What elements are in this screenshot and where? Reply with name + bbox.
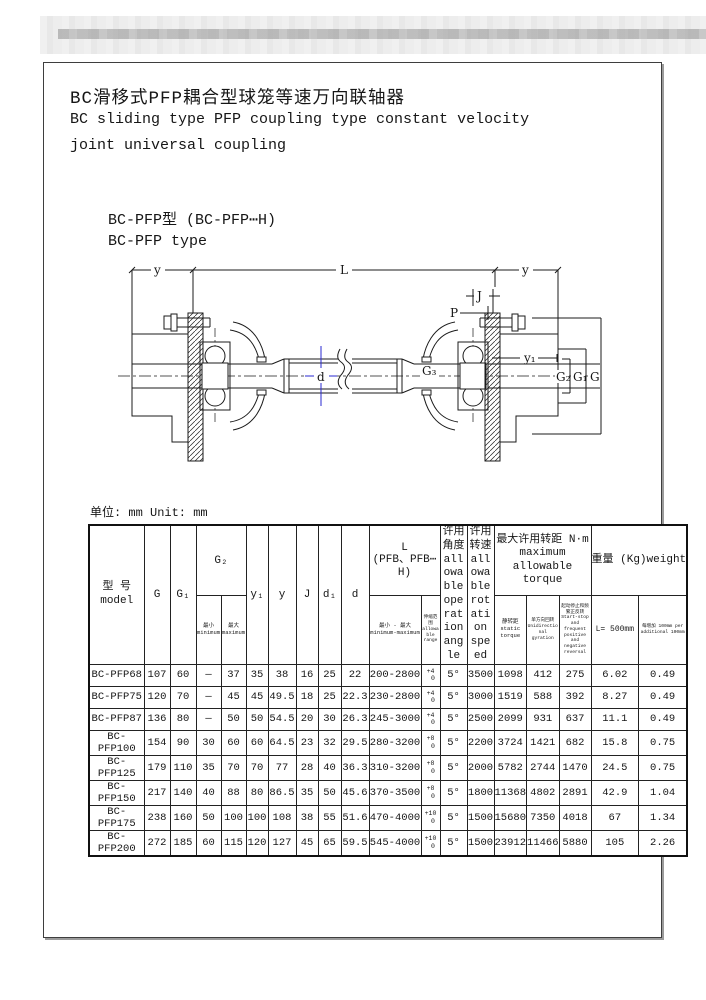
table-cell: 77: [268, 755, 296, 780]
table-cell: 100: [246, 805, 268, 830]
table-cell: 23: [296, 730, 318, 755]
table-cell: 35: [296, 780, 318, 805]
table-cell: 70: [170, 686, 196, 708]
table-cell: 80: [170, 708, 196, 730]
table-row: BC-PFP12517911035707077284036.3310-3200+…: [89, 755, 687, 780]
table-cell: 45: [246, 686, 268, 708]
table-cell: 5°: [440, 686, 467, 708]
header-y1: y₁: [246, 525, 268, 664]
table-cell: 4802: [527, 780, 560, 805]
table-cell: 5°: [440, 805, 467, 830]
table-cell: 105: [591, 830, 639, 856]
table-cell: 5°: [440, 780, 467, 805]
table-cell: 1500: [467, 805, 494, 830]
table-cell: 2200: [467, 730, 494, 755]
table-cell: 238: [144, 805, 170, 830]
table-cell: —: [196, 708, 221, 730]
table-cell: 15.8: [591, 730, 639, 755]
table-cell: 64.5: [268, 730, 296, 755]
table-cell: 637: [559, 708, 591, 730]
table-cell: 1470: [559, 755, 591, 780]
table-cell: 45: [296, 830, 318, 856]
table-cell: 49.5: [268, 686, 296, 708]
table-cell: 2891: [559, 780, 591, 805]
table-cell: 3724: [494, 730, 527, 755]
table-cell: 136: [144, 708, 170, 730]
header-model-en: model: [90, 595, 144, 609]
table-cell: +40: [421, 664, 440, 686]
table-cell: 115: [221, 830, 246, 856]
table-cell: +40: [421, 686, 440, 708]
table-cell: 5°: [440, 664, 467, 686]
model-cell: BC-PFP175: [89, 805, 144, 830]
header-L-line1: L: [370, 542, 440, 555]
table-cell: 1.34: [639, 805, 688, 830]
model-cell: BC-PFP200: [89, 830, 144, 856]
table-cell: 26.3: [341, 708, 369, 730]
header-model-cn: 型 号: [90, 581, 144, 595]
table-cell: 5°: [440, 708, 467, 730]
dim-label-G1: G₁: [573, 370, 587, 384]
table-cell: 35: [246, 664, 268, 686]
table-cell: 4018: [559, 805, 591, 830]
unit-note: 单位: mm Unit: mm: [90, 503, 208, 520]
model-cell: BC-PFP75: [89, 686, 144, 708]
table-cell: 275: [559, 664, 591, 686]
table-cell: 11368: [494, 780, 527, 805]
table-cell: 54.5: [268, 708, 296, 730]
dim-label-y-right: y: [521, 263, 529, 277]
table-cell: 931: [527, 708, 560, 730]
table-cell: 5782: [494, 755, 527, 780]
dim-label-G: G: [590, 370, 600, 384]
table-cell: 22: [341, 664, 369, 686]
table-cell: 67: [591, 805, 639, 830]
model-cell: BC-PFP68: [89, 664, 144, 686]
page-title-en-1: BC sliding type PFP coupling type consta…: [70, 111, 529, 128]
table-cell: 7350: [527, 805, 560, 830]
header-L-minmax: 最小 - 最大 minimum-maximum: [369, 596, 421, 664]
table-cell: 8.27: [591, 686, 639, 708]
table-cell: 50: [246, 708, 268, 730]
dim-label-L: L: [340, 263, 348, 277]
header-weight-group: 重量 (Kg)weight: [591, 525, 687, 596]
table-cell: 160: [170, 805, 196, 830]
table-cell: 80: [246, 780, 268, 805]
table-cell: 140: [170, 780, 196, 805]
table-cell: 0.49: [639, 686, 688, 708]
dim-label-y-left: y: [153, 263, 161, 277]
header-G2-min: 最小 minimum: [196, 596, 221, 664]
table-cell: 70: [221, 755, 246, 780]
table-cell: 30: [196, 730, 221, 755]
table-cell: 2.26: [639, 830, 688, 856]
dim-label-d: d: [317, 370, 325, 384]
table-cell: 55: [318, 805, 341, 830]
header-d: d: [341, 525, 369, 664]
header-G: G: [144, 525, 170, 664]
table-cell: 5°: [440, 755, 467, 780]
table-cell: 18: [296, 686, 318, 708]
table-cell: 86.5: [268, 780, 296, 805]
catalog-page: BC滑移式PFP耦合型球笼等速万向联轴器 BC sliding type PFP…: [0, 0, 706, 1000]
table-cell: 60: [246, 730, 268, 755]
table-row: BC-PFP1001549030606064.5233229.5280-3200…: [89, 730, 687, 755]
table-cell: 65: [318, 830, 341, 856]
table-cell: 154: [144, 730, 170, 755]
model-cell: BC-PFP125: [89, 755, 144, 780]
header-L-range: 伸缩范围 allowable range: [421, 596, 440, 664]
header-allowable-angle: 许用角度 allowable operation angle: [440, 525, 467, 664]
table-cell: 3500: [467, 664, 494, 686]
table-cell: 40: [196, 780, 221, 805]
table-row: BC-PFP17523816050100100108385551.6470-40…: [89, 805, 687, 830]
table-cell: 38: [268, 664, 296, 686]
table-cell: 42.9: [591, 780, 639, 805]
table-cell: 50: [318, 780, 341, 805]
model-cell: BC-PFP87: [89, 708, 144, 730]
header-startstop-torque: 起动停止和频繁正反转 Start-stop and frequent posit…: [559, 596, 591, 664]
table-cell: +100: [421, 805, 440, 830]
model-cell: BC-PFP100: [89, 730, 144, 755]
header-L-line2: (PFB、PFB⋯H): [370, 554, 440, 579]
table-cell: 70: [246, 755, 268, 780]
table-cell: 11466: [527, 830, 560, 856]
table-cell: 90: [170, 730, 196, 755]
table-cell: 272: [144, 830, 170, 856]
table-cell: 45: [221, 686, 246, 708]
table-cell: 185: [170, 830, 196, 856]
type-designation-cn: BC-PFP型 (BC-PFP⋯H): [108, 208, 276, 229]
table-cell: 110: [170, 755, 196, 780]
table-cell: 470-4000: [369, 805, 421, 830]
table-cell: 88: [221, 780, 246, 805]
table-cell: 280-3200: [369, 730, 421, 755]
type-designation-en: BC-PFP type: [108, 233, 207, 250]
table-cell: 22.3: [341, 686, 369, 708]
table-cell: +80: [421, 755, 440, 780]
table-cell: 35: [196, 755, 221, 780]
table-cell: 310-3200: [369, 755, 421, 780]
table-cell: 36.3: [341, 755, 369, 780]
table-cell: 25: [318, 686, 341, 708]
table-cell: 37: [221, 664, 246, 686]
dim-label-y1: y₁: [523, 351, 536, 365]
table-cell: 370-3500: [369, 780, 421, 805]
table-cell: 2744: [527, 755, 560, 780]
header-y: y: [268, 525, 296, 664]
spec-table-body: BC-PFP6810760—373538162522200-2800+405°3…: [89, 664, 687, 856]
table-row: BC-PFP7512070—454549.5182522.3230-2800+4…: [89, 686, 687, 708]
table-cell: 120: [246, 830, 268, 856]
table-cell: 0.49: [639, 708, 688, 730]
table-cell: 32: [318, 730, 341, 755]
table-cell: 1800: [467, 780, 494, 805]
table-cell: 25: [318, 664, 341, 686]
table-cell: +40: [421, 708, 440, 730]
table-cell: 60: [196, 830, 221, 856]
technical-drawing: y L y J P y₁ G₃ d G₂ G₁ G: [100, 256, 605, 481]
table-cell: 45.6: [341, 780, 369, 805]
table-row: BC-PFP20027218560115120127456559.5545-40…: [89, 830, 687, 856]
table-cell: —: [196, 686, 221, 708]
header-static-torque: 静转距 static torque: [494, 596, 527, 664]
table-cell: 5°: [440, 830, 467, 856]
dim-label-P: P: [450, 306, 458, 320]
table-cell: 5880: [559, 830, 591, 856]
table-cell: 20: [296, 708, 318, 730]
table-cell: 1.04: [639, 780, 688, 805]
table-cell: 588: [527, 686, 560, 708]
table-cell: 15680: [494, 805, 527, 830]
table-row: BC-PFP15021714040888086.5355045.6370-350…: [89, 780, 687, 805]
header-G2-max: 最大 maximum: [221, 596, 246, 664]
header-G1: G₁: [170, 525, 196, 664]
table-cell: 23912: [494, 830, 527, 856]
table-cell: 50: [221, 708, 246, 730]
table-row: BC-PFP6810760—373538162522200-2800+405°3…: [89, 664, 687, 686]
table-cell: 245-3000: [369, 708, 421, 730]
table-cell: 2000: [467, 755, 494, 780]
dim-label-G2: G₂: [556, 370, 571, 384]
header-G2-group: G₂: [196, 525, 246, 596]
table-row: BC-PFP8713680—505054.5203026.3245-3000+4…: [89, 708, 687, 730]
spec-table: 型 号 model G G₁ G₂ y₁ y J d₁ d L (PFB、PFB…: [88, 524, 688, 857]
model-cell: BC-PFP150: [89, 780, 144, 805]
header-weight-per100: 每增加 100mm per additional 100mm: [639, 596, 688, 664]
table-cell: 5°: [440, 730, 467, 755]
table-cell: 40: [318, 755, 341, 780]
table-cell: 59.5: [341, 830, 369, 856]
table-cell: 28: [296, 755, 318, 780]
table-cell: 412: [527, 664, 560, 686]
table-cell: 6.02: [591, 664, 639, 686]
table-cell: 1098: [494, 664, 527, 686]
table-cell: 100: [221, 805, 246, 830]
header-weight-L500: L= 500mm: [591, 596, 639, 664]
table-cell: 2099: [494, 708, 527, 730]
header-model: 型 号 model: [89, 525, 144, 664]
table-cell: 120: [144, 686, 170, 708]
table-cell: —: [196, 664, 221, 686]
table-cell: +80: [421, 730, 440, 755]
table-cell: 127: [268, 830, 296, 856]
table-cell: 38: [296, 805, 318, 830]
table-cell: 24.5: [591, 755, 639, 780]
table-cell: 2500: [467, 708, 494, 730]
table-cell: 11.1: [591, 708, 639, 730]
scan-artifact-bar: [58, 29, 706, 39]
table-cell: 60: [170, 664, 196, 686]
header-d1: d₁: [318, 525, 341, 664]
table-cell: 682: [559, 730, 591, 755]
header-unidirectional-torque: 单方向回转 Unidirectional gyration: [527, 596, 560, 664]
table-cell: 1519: [494, 686, 527, 708]
table-cell: +100: [421, 830, 440, 856]
header-allowable-speed: 许用转速 allowable rotation speed: [467, 525, 494, 664]
header-L-group: L (PFB、PFB⋯H): [369, 525, 440, 596]
dim-label-G3: G₃: [422, 364, 437, 378]
table-cell: +80: [421, 780, 440, 805]
table-cell: 29.5: [341, 730, 369, 755]
table-cell: 0.75: [639, 730, 688, 755]
table-cell: 60: [221, 730, 246, 755]
table-cell: 545-4000: [369, 830, 421, 856]
table-cell: 0.75: [639, 755, 688, 780]
table-cell: 0.49: [639, 664, 688, 686]
table-cell: 50: [196, 805, 221, 830]
page-title-en-2: joint universal coupling: [70, 137, 286, 154]
header-torque-group: 最大许用转距 N·m maximum allowable torque: [494, 525, 591, 596]
table-cell: 230-2800: [369, 686, 421, 708]
table-cell: 200-2800: [369, 664, 421, 686]
table-cell: 1421: [527, 730, 560, 755]
table-cell: 51.6: [341, 805, 369, 830]
table-cell: 16: [296, 664, 318, 686]
table-cell: 217: [144, 780, 170, 805]
table-cell: 179: [144, 755, 170, 780]
table-cell: 1500: [467, 830, 494, 856]
table-cell: 108: [268, 805, 296, 830]
table-cell: 107: [144, 664, 170, 686]
table-cell: 392: [559, 686, 591, 708]
dim-label-J: J: [475, 289, 482, 303]
table-cell: 3000: [467, 686, 494, 708]
page-title: BC滑移式PFP耦合型球笼等速万向联轴器: [70, 84, 405, 109]
table-cell: 30: [318, 708, 341, 730]
header-J: J: [296, 525, 318, 664]
